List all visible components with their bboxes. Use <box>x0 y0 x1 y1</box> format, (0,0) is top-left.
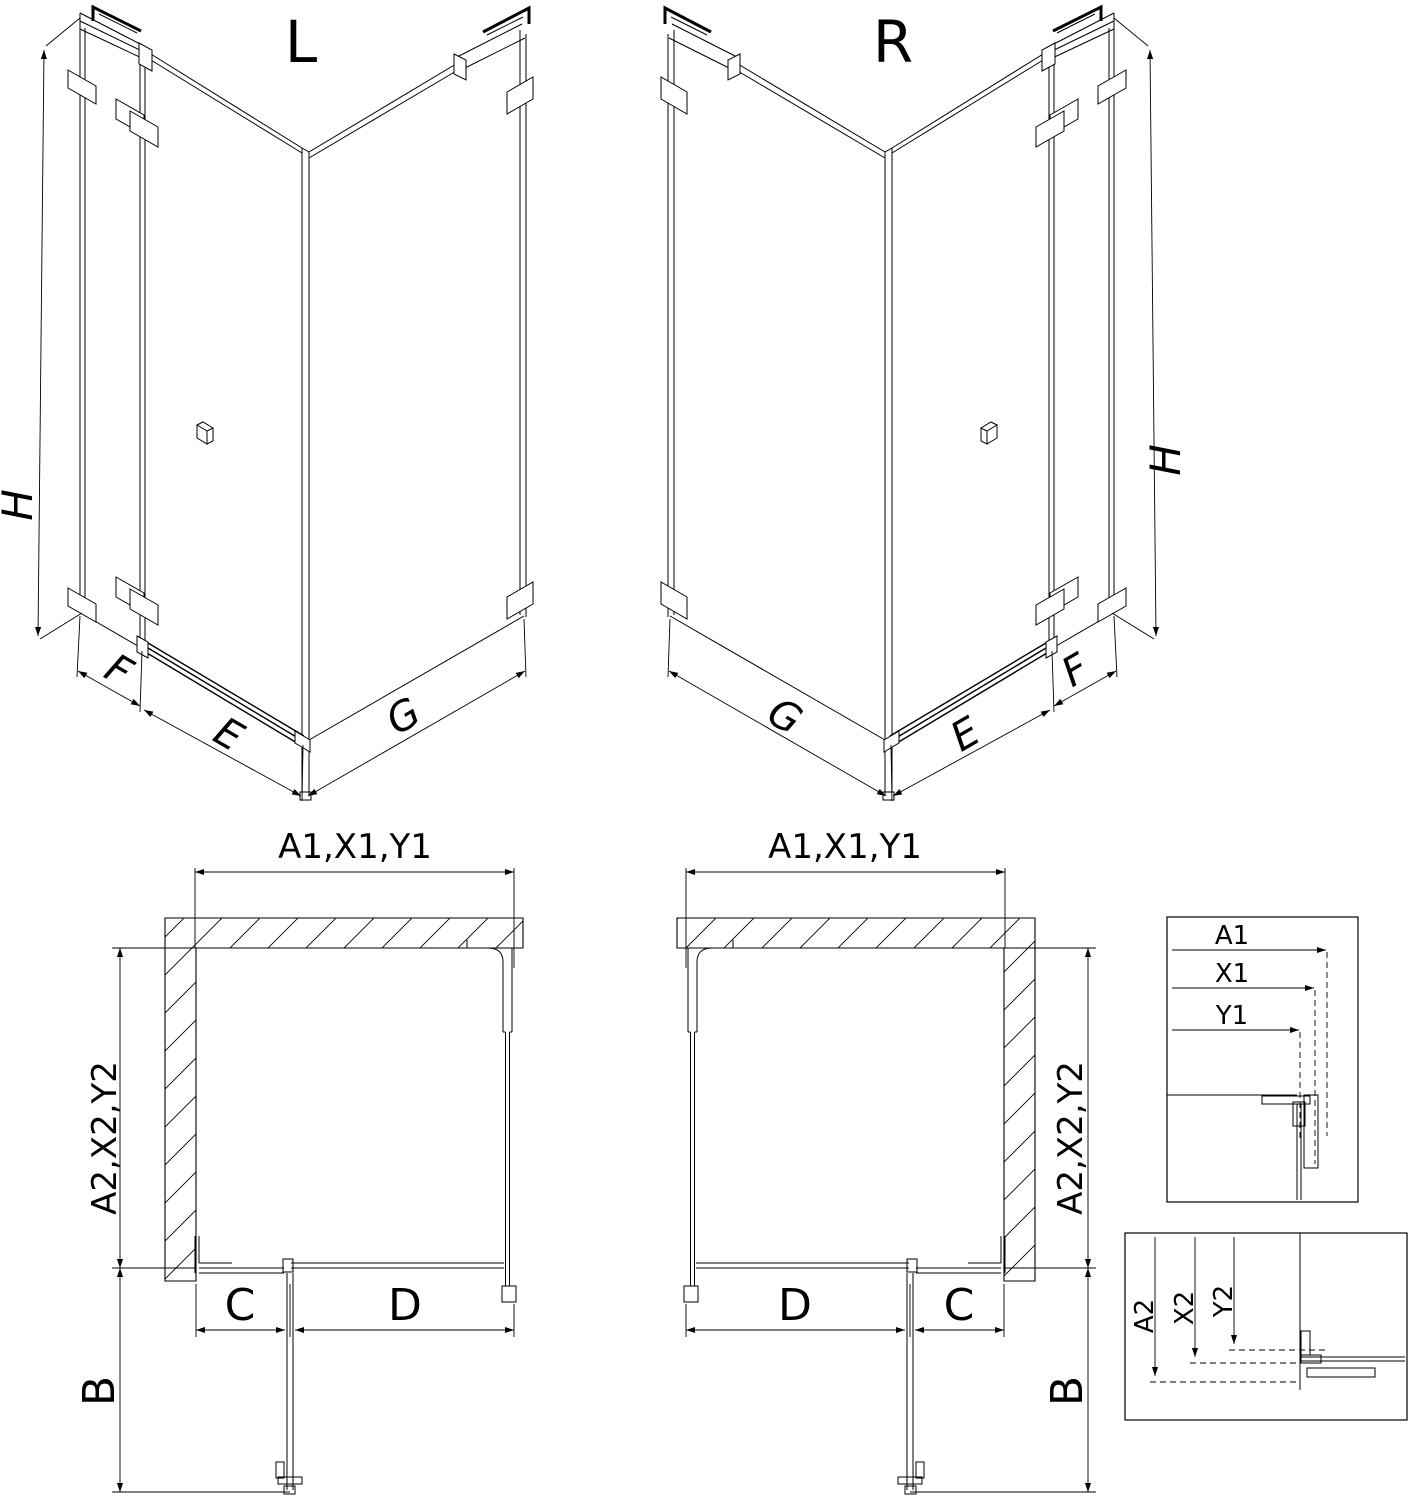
side-glass-panel <box>684 940 733 1302</box>
door-handle <box>916 1462 924 1478</box>
header-bar <box>80 13 148 61</box>
front-fixed-glass <box>916 1236 1005 1273</box>
side-panel-outer-edge <box>80 25 85 615</box>
dim-label-c: C <box>225 1280 256 1331</box>
plan-view-right: A1,X1,Y1 A2,X2,Y2 B D C <box>677 827 1096 1494</box>
room-wall-hatched <box>677 918 1035 1281</box>
door-handle <box>276 1462 284 1478</box>
door-knob <box>197 422 213 444</box>
view-title-right: R <box>873 8 913 76</box>
shower-enclosure-drawing: L H F E G R H F E G A1,X1,Y1 A2,X2,Y2 B <box>0 0 1416 1497</box>
dim-label-h: H <box>1141 444 1190 476</box>
side-wall-outer-edge <box>520 30 526 617</box>
hinge-edge <box>140 51 145 648</box>
detail-box-width: A1 X1 Y1 <box>1167 917 1358 1202</box>
dim-label-g: G <box>760 689 810 744</box>
dim-label-a2x2y2: A2,X2,Y2 <box>1051 1061 1091 1215</box>
detail-label-x2: X2 <box>1170 1291 1200 1325</box>
dim-label-f: F <box>1054 645 1098 697</box>
door-top-edge <box>146 51 302 153</box>
front-fixed-glass <box>195 1236 284 1273</box>
room-wall-hatched <box>165 918 523 1281</box>
technical-drawing-page: L H F E G R H F E G A1,X1,Y1 A2,X2,Y2 B <box>0 0 1416 1497</box>
plan-view-left: A1,X1,Y1 A2,X2,Y2 B <box>74 827 523 1494</box>
corner-block <box>684 1286 698 1302</box>
dim-label-d: D <box>778 1280 812 1331</box>
view-title-left: L <box>285 8 317 76</box>
door-pivot <box>907 1259 917 1272</box>
detail-box-depth: A2 X2 Y2 <box>1125 1233 1407 1420</box>
iso-view-left: L H F E G <box>0 7 533 801</box>
dim-label-h: H <box>0 489 42 521</box>
bottom-glass-edge <box>696 1263 909 1268</box>
corner-block <box>502 1286 516 1302</box>
dim-label-d: D <box>388 1280 422 1331</box>
wall-bracket-plate <box>68 70 96 104</box>
ceiling-bracket-right-icon <box>483 8 529 32</box>
dim-label-b: B <box>74 1376 125 1406</box>
header-bar-endcap <box>139 43 152 71</box>
dim-line-h <box>38 50 44 636</box>
dim-label-e: E <box>943 708 989 761</box>
detail-label-x1: X1 <box>1215 959 1249 989</box>
detail-label-y2: Y2 <box>1209 1285 1239 1318</box>
dim-label-e: E <box>206 709 252 762</box>
side-glass-panel <box>467 940 516 1302</box>
wall-bracket-plate <box>68 588 96 622</box>
open-door <box>276 1273 302 1494</box>
open-door <box>898 1273 924 1494</box>
iso-view-right: R H F E G <box>661 7 1190 801</box>
profile-cross-section <box>1262 1095 1318 1200</box>
bottom-glass-edge <box>291 1263 504 1268</box>
dim-label-a2x2y2: A2,X2,Y2 <box>85 1061 125 1215</box>
dim-label-a1x1y1: A1,X1,Y1 <box>278 827 432 867</box>
corner-post <box>302 148 309 795</box>
dim-label-g: G <box>379 689 429 744</box>
profile-cross-section <box>1300 1331 1405 1377</box>
side-wall-top-edge <box>309 61 463 158</box>
detail-label-a1: A1 <box>1215 921 1249 951</box>
header-bar-side <box>457 24 525 71</box>
dim-label-b: B <box>1042 1376 1093 1406</box>
detail-label-y1: Y1 <box>1215 1001 1248 1031</box>
dim-label-a1x1y1: A1,X1,Y1 <box>768 827 922 867</box>
dim-label-f: F <box>97 645 141 697</box>
door-pivot <box>283 1259 293 1272</box>
header-bar-side-endcap <box>454 54 466 80</box>
ceiling-bracket-left-icon <box>93 7 141 31</box>
dim-label-c: C <box>944 1280 975 1331</box>
detail-label-a2: A2 <box>1130 1299 1160 1333</box>
